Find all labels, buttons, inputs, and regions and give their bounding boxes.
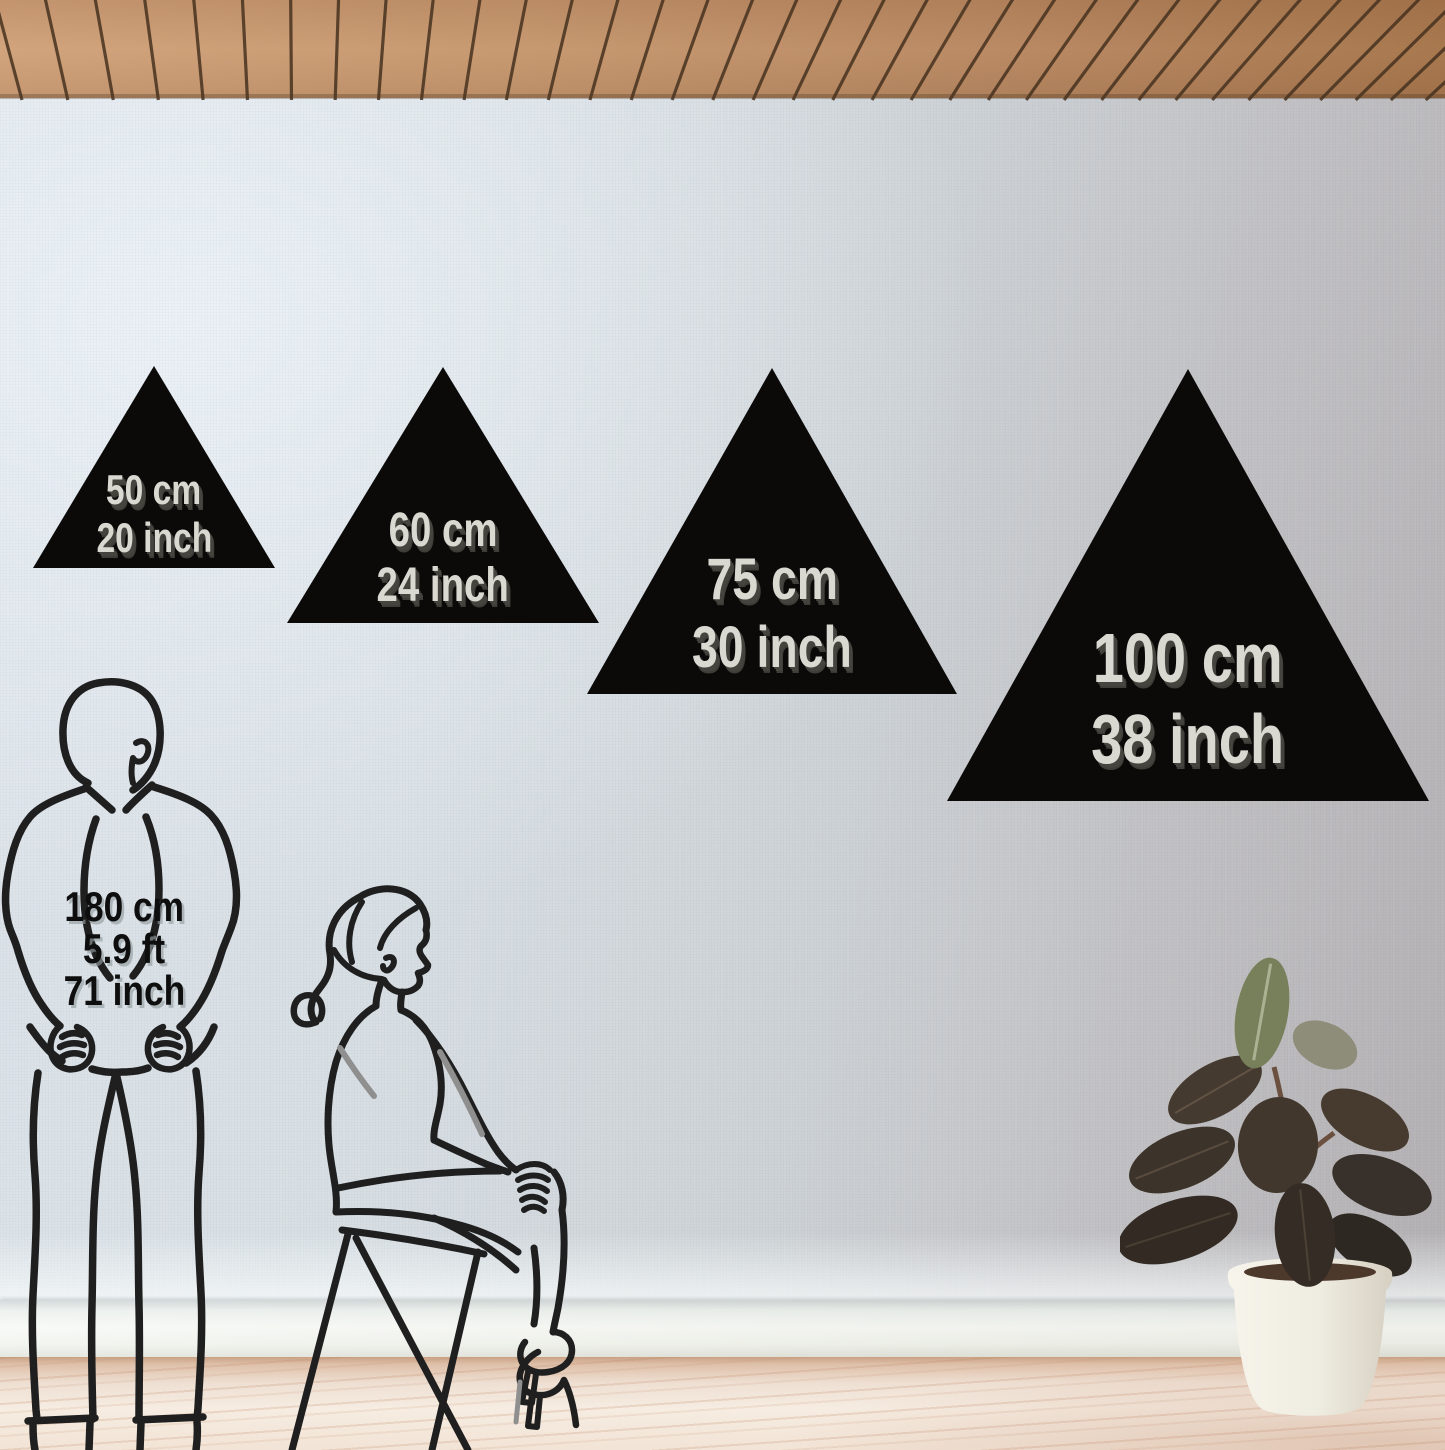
woman-face-profile [384,930,428,992]
man-collar [86,785,152,810]
size-label-100cm: 100 cm 38 inch [947,618,1429,780]
man-leg-right-inner [116,1073,139,1419]
height-cm-text: 180 cm [42,886,206,928]
wood-slat-ceiling [0,0,1445,102]
woman-thigh [338,1171,500,1188]
standing-man-line-art [0,675,250,1450]
size-cm-text: 100 cm [947,618,1429,699]
height-ft-text: 5.9 ft [42,928,206,970]
man-hand-left [50,1026,92,1069]
size-triangle-60cm: 60 cm 24 inch [287,367,599,623]
size-triangle-50cm: 50 cm 20 inch [33,366,275,568]
stool-legs [292,1234,478,1450]
sitting-woman-line-art [270,880,600,1450]
man-pant-cuffs [28,1417,203,1421]
wood-slat-ceiling-graphic [0,0,1445,102]
man-shoes [33,1422,197,1450]
size-cm-text: 50 cm [33,466,275,515]
woman-shoe-heel-2 [528,1394,540,1427]
size-triangle-75cm: 75 cm 30 inch [587,368,957,694]
man-head [63,682,160,790]
woman-arm-accent-strokes [340,1048,482,1134]
ceiling-edge-shadow [0,94,1445,99]
height-inch-text: 71 inch [42,970,206,1012]
size-inch-text: 38 inch [947,699,1429,780]
woman-shin [553,1210,564,1332]
size-label-60cm: 60 cm 24 inch [287,503,599,614]
human-height-reference: 180 cm 5.9 ft 71 inch [42,886,206,1012]
size-inch-text: 24 inch [287,558,599,614]
size-cm-text: 75 cm [587,546,957,613]
size-inch-text: 30 inch [587,614,957,681]
woman-hands-clasped [516,1164,550,1211]
green-top-leaf [1227,953,1298,1072]
size-triangle-100cm: 100 cm 38 inch [947,369,1429,801]
man-leg-right [196,1071,202,1419]
woman-knee [554,1172,563,1210]
heel-accent-stroke [516,1382,520,1422]
woman-shoe-upper [520,1332,572,1373]
woman-calf [534,1248,537,1324]
man-leg-left [32,1073,38,1419]
size-label-75cm: 75 cm 30 inch [587,546,957,681]
size-inch-text: 20 inch [33,514,275,563]
potted-rubber-plant [1120,935,1445,1450]
size-cm-text: 60 cm [287,503,599,559]
woman-hair-strands [334,902,416,979]
woman-ear [383,957,394,970]
size-label-50cm: 50 cm 20 inch [33,466,275,563]
man-leg-left-inner [92,1073,116,1419]
product-size-mockup-scene: 50 cm 20 inch 60 cm 24 inch 75 cm 30 inc… [0,0,1445,1450]
